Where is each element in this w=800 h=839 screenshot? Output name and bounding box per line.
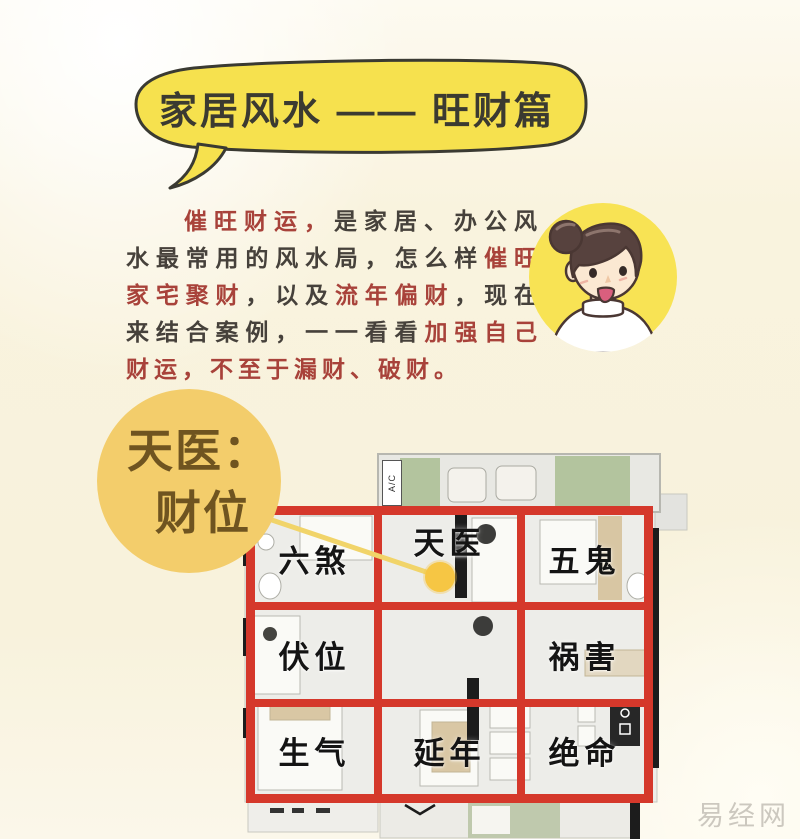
grid-cell-center — [378, 606, 521, 704]
cell-label: 延年 — [413, 728, 485, 773]
watermark: 易经网 — [697, 794, 790, 833]
cell-label: 生气 — [279, 728, 351, 773]
grid-cell-fuwei: 伏位 — [251, 606, 378, 704]
cell-label: 祸害 — [548, 632, 620, 677]
cell-label: 五鬼 — [548, 536, 620, 581]
callout-circle: 天医： 财位 — [97, 389, 281, 573]
callout-connector-line — [248, 508, 448, 588]
intro-segment: 催旺财运， — [184, 208, 334, 234]
page-title: 家居风水 —— 旺财篇 — [124, 80, 590, 135]
grid-cell-huohai: 祸害 — [521, 606, 648, 704]
intro-paragraph: 催旺财运，是家居、办公风水最常用的风水局，怎么样催旺家宅聚财，以及流年偏财，现在… — [126, 203, 542, 388]
wealth-spot-marker — [425, 562, 455, 592]
grid-cell-wugui: 五鬼 — [521, 511, 648, 606]
cell-label: 伏位 — [279, 632, 351, 677]
avatar-illustration — [527, 201, 679, 353]
grid-cell-jueming: 绝命 — [521, 703, 648, 798]
callout-line2: 财位 — [155, 477, 251, 543]
intro-segment: ，以及 — [245, 282, 335, 308]
ac-unit-label: A/C — [382, 460, 402, 506]
grid-cell-yannian: 延年 — [378, 703, 521, 798]
cell-label: 绝命 — [548, 728, 620, 773]
intro-segment: 流年偏财 — [335, 282, 454, 308]
infographic-canvas: 家居风水 —— 旺财篇 催旺财运，是家居、办公风水最常用的风水局，怎么样催旺家宅… — [0, 0, 800, 839]
avatar — [527, 201, 679, 353]
callout-line1: 天医： — [127, 415, 271, 481]
grid-cell-shengqi: 生气 — [251, 703, 378, 798]
title-speech-bubble: 家居风水 —— 旺财篇 — [124, 56, 594, 192]
